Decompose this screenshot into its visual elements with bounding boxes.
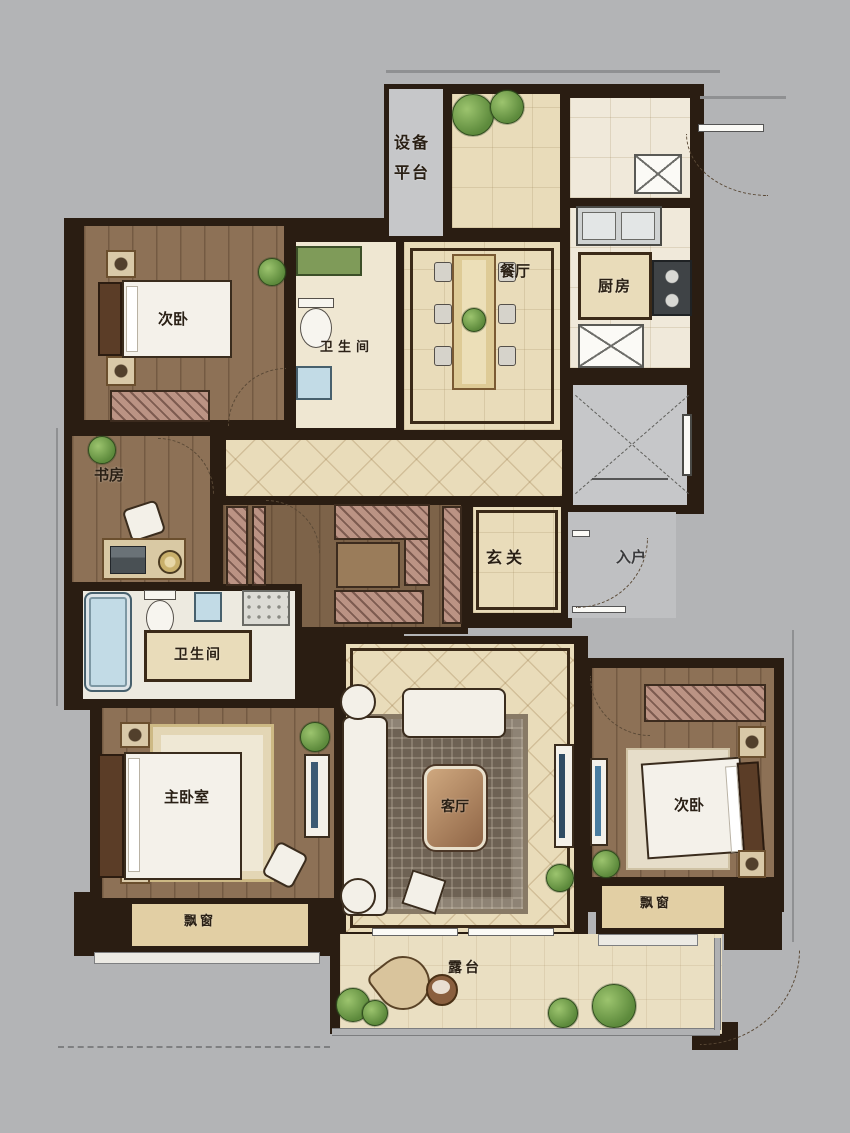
- plant-icon: [546, 864, 574, 892]
- kitchen-sink-basin-right: [621, 212, 655, 240]
- terrace-label: 露台: [448, 960, 482, 978]
- wardrobe: [110, 390, 210, 422]
- dining-chair: [434, 346, 452, 366]
- wardrobe: [644, 684, 766, 722]
- study-label: 书房: [94, 466, 124, 485]
- closet-wardrobe: [404, 538, 430, 586]
- nightstand: [738, 850, 766, 878]
- master-bedroom-label: 主卧室: [164, 788, 209, 807]
- kitchen-label-box: 厨房: [578, 252, 652, 320]
- bed-pillow: [126, 286, 138, 352]
- bed-pillow: [128, 758, 140, 872]
- dining-chair: [498, 346, 516, 366]
- plant-icon: [362, 1000, 388, 1026]
- washer-icon: [634, 154, 682, 194]
- nightstand: [120, 722, 150, 748]
- terrace-table-dish: [432, 980, 450, 994]
- equipment-platform-label: 设备平台: [394, 128, 434, 189]
- terrace-door-leaf: [372, 928, 458, 936]
- bay-window-left-label: 飘窗: [184, 914, 216, 930]
- closet-wardrobe: [442, 506, 462, 624]
- dining-centerpiece-plant-icon: [462, 308, 486, 332]
- globe-icon: [158, 550, 182, 574]
- stove-icon: [652, 260, 692, 316]
- top-ledge-line: [386, 70, 720, 73]
- coffee-table: 客厅: [424, 766, 486, 850]
- living-label: 客厅: [441, 799, 469, 817]
- bath-master-label-box: 卫生间: [144, 630, 252, 682]
- toilet-tank: [298, 298, 334, 308]
- bay-window-right-label: 飘窗: [640, 896, 672, 912]
- bath-mat: [296, 246, 362, 276]
- plant-icon: [300, 722, 330, 752]
- closet-wardrobe: [334, 504, 430, 540]
- plant-icon: [592, 850, 620, 878]
- dashed-guide-bottom-left: [58, 1046, 330, 1048]
- kitchen-cabinet: [578, 324, 644, 368]
- plant-icon: [592, 984, 636, 1028]
- bathtub-icon: [84, 592, 132, 692]
- entry-door-leaf-a: [572, 530, 590, 537]
- plant-icon: [258, 258, 286, 286]
- top-right-ledge-line: [700, 96, 786, 99]
- laptop-icon: [110, 546, 146, 574]
- closet-wardrobe: [226, 506, 248, 586]
- dining-chair: [434, 262, 452, 282]
- foyer-label: 玄关: [486, 548, 526, 568]
- bay-window-left-sill: [94, 952, 320, 964]
- bath-top-label: 卫生间: [320, 340, 374, 356]
- side-table-round: [340, 684, 376, 720]
- tv-icon: [559, 754, 565, 838]
- bay-window-right-sill: [598, 934, 698, 946]
- side-table-round: [340, 878, 376, 914]
- closet-island: [336, 542, 400, 588]
- room-bay-window-left: [126, 898, 314, 952]
- closet-wardrobe: [252, 506, 266, 586]
- closet-wardrobe: [334, 590, 424, 624]
- bedroom-top-label: 次卧: [158, 310, 188, 329]
- bed: [124, 752, 242, 880]
- room-hallway: [220, 434, 568, 502]
- nightstand: [106, 250, 136, 278]
- bedroom-right-label: 次卧: [674, 796, 704, 815]
- exterior-door-leaf-top: [698, 124, 764, 132]
- dining-chair: [434, 304, 452, 324]
- toilet-tank: [144, 590, 176, 600]
- kitchen-sink-basin-left: [582, 212, 616, 240]
- kitchen-label: 厨房: [598, 277, 632, 296]
- floor-plan: 设备平台 厨房 餐厅 次卧 卫生间 书房: [0, 0, 850, 1133]
- nightstand: [738, 726, 766, 758]
- bed-headboard: [98, 754, 124, 878]
- plant-icon: [548, 998, 578, 1028]
- elevator-sill-line: [592, 478, 668, 480]
- balcony-tree-icon: [452, 94, 494, 136]
- dashed-swing-bottom-right: [700, 950, 800, 1045]
- sofa-two-seat: [402, 688, 506, 738]
- sink-icon: [194, 592, 222, 622]
- shower-stall: [242, 590, 290, 626]
- bath-master-label: 卫生间: [174, 647, 222, 665]
- shower-basin: [296, 366, 332, 400]
- terrace-door-leaf: [468, 928, 554, 936]
- dimension-line-right: [792, 630, 794, 942]
- tv-icon: [595, 766, 601, 836]
- tv-icon: [311, 762, 318, 828]
- entry-label: 入户: [616, 548, 646, 567]
- dining-label: 餐厅: [500, 262, 530, 281]
- dining-chair: [498, 304, 516, 324]
- elevator-door: [682, 414, 692, 476]
- plant-icon: [88, 436, 116, 464]
- dimension-line-left: [56, 428, 58, 706]
- balcony-tree-small-icon: [490, 90, 524, 124]
- bed-headboard: [98, 282, 122, 356]
- nightstand: [106, 356, 136, 386]
- terrace-parapet-bottom: [332, 1028, 720, 1036]
